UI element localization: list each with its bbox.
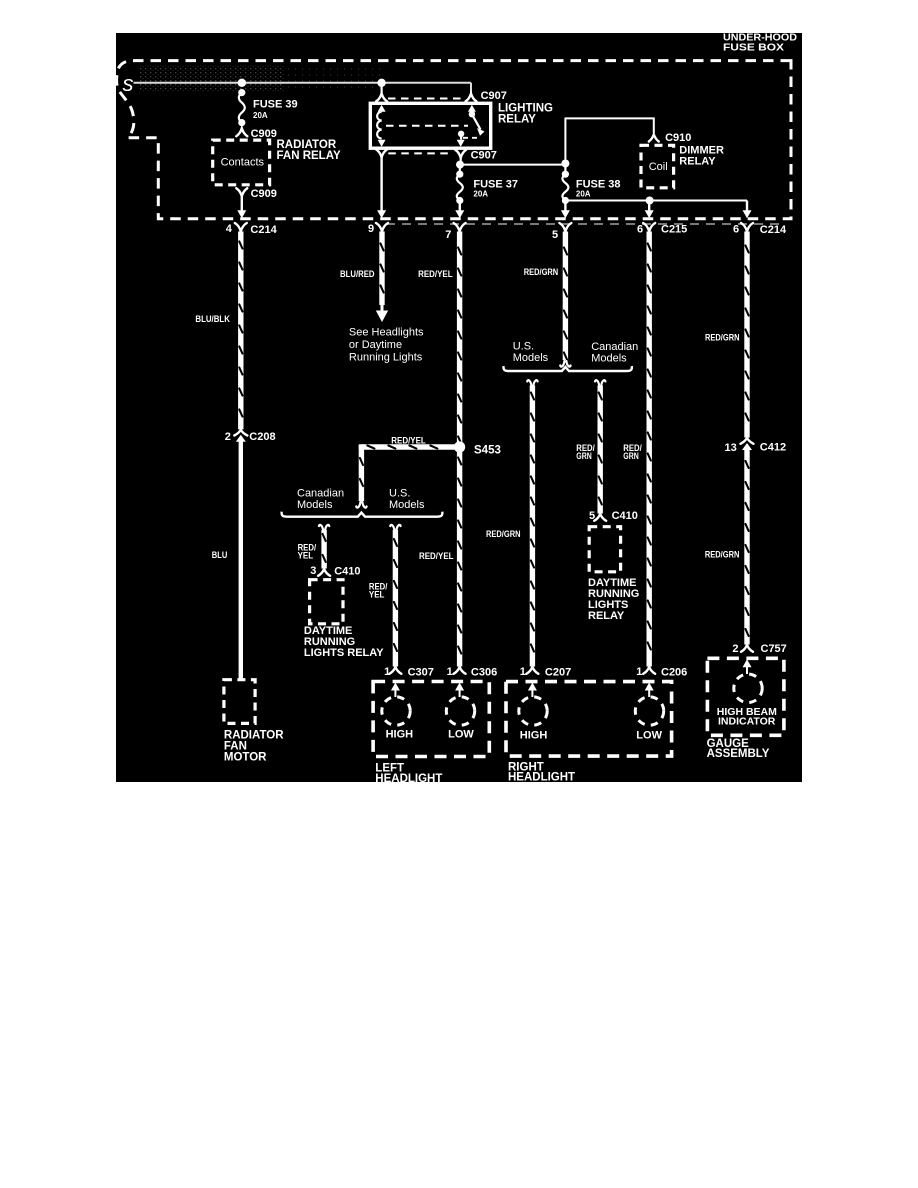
- svg-text:20A: 20A: [576, 190, 591, 199]
- svg-text:RED/GRN: RED/GRN: [705, 549, 740, 560]
- svg-text:U.S.: U.S.: [513, 341, 534, 353]
- svg-text:GRN: GRN: [623, 451, 639, 462]
- svg-text:7: 7: [445, 229, 451, 241]
- svg-text:or Daytime: or Daytime: [349, 339, 402, 351]
- svg-text:Models: Models: [513, 352, 549, 364]
- svg-text:5: 5: [552, 229, 558, 241]
- svg-text:C206: C206: [661, 667, 687, 679]
- svg-text:RED/GRN: RED/GRN: [705, 332, 740, 343]
- svg-text:6: 6: [733, 223, 739, 235]
- svg-text:RED/GRN: RED/GRN: [486, 529, 521, 540]
- svg-text:Coil: Coil: [649, 161, 668, 173]
- svg-text:Running Lights: Running Lights: [349, 352, 423, 364]
- svg-text:RELAY: RELAY: [588, 610, 625, 622]
- svg-text:LIGHTS RELAY: LIGHTS RELAY: [304, 647, 384, 659]
- svg-text:INDICATOR: INDICATOR: [718, 715, 776, 727]
- svg-text:HIGH: HIGH: [386, 729, 414, 741]
- svg-text:Contacts: Contacts: [221, 156, 265, 168]
- svg-text:RELAY: RELAY: [679, 156, 716, 168]
- svg-text:5: 5: [589, 510, 595, 522]
- svg-text:9: 9: [368, 223, 374, 235]
- svg-text:C909: C909: [251, 188, 277, 200]
- svg-text:FUSE 38: FUSE 38: [576, 178, 621, 190]
- svg-text:HIGH: HIGH: [520, 730, 548, 742]
- svg-text:C207: C207: [545, 667, 571, 679]
- svg-text:2: 2: [732, 643, 738, 655]
- svg-text:C307: C307: [408, 667, 434, 679]
- svg-text:GRN: GRN: [576, 451, 592, 462]
- svg-text:C757: C757: [761, 643, 787, 655]
- svg-text:Models: Models: [591, 353, 627, 365]
- svg-text:4: 4: [226, 223, 233, 235]
- svg-text:s: s: [123, 71, 134, 96]
- svg-text:3: 3: [310, 565, 316, 577]
- svg-text:C410: C410: [612, 510, 638, 522]
- svg-text:1: 1: [447, 666, 453, 678]
- svg-text:FAN RELAY: FAN RELAY: [277, 150, 341, 162]
- svg-text:FUSE 37: FUSE 37: [473, 178, 518, 190]
- svg-text:See Headlights: See Headlights: [349, 327, 424, 339]
- svg-text:C215: C215: [661, 224, 687, 236]
- svg-text:C907: C907: [481, 90, 507, 102]
- svg-text:C412: C412: [760, 442, 786, 454]
- svg-text:C306: C306: [471, 667, 497, 679]
- svg-text:BLU: BLU: [212, 550, 228, 561]
- svg-text:RED/GRN: RED/GRN: [524, 267, 559, 278]
- svg-text:MOTOR: MOTOR: [224, 752, 267, 764]
- svg-text:RED/YEL: RED/YEL: [391, 435, 426, 446]
- svg-text:C208: C208: [249, 431, 275, 443]
- svg-text:C410: C410: [334, 566, 360, 578]
- svg-text:BLU/RED: BLU/RED: [340, 269, 375, 280]
- svg-text:20A: 20A: [473, 190, 488, 199]
- svg-text:Canadian: Canadian: [591, 341, 638, 353]
- svg-text:U.S.: U.S.: [389, 488, 410, 500]
- svg-text:13: 13: [725, 442, 737, 454]
- svg-text:RED/YEL: RED/YEL: [418, 269, 453, 280]
- svg-text:Models: Models: [389, 499, 425, 511]
- svg-text:2: 2: [225, 431, 231, 443]
- svg-text:C909: C909: [251, 128, 277, 140]
- svg-text:6: 6: [637, 224, 643, 236]
- svg-text:1: 1: [636, 666, 642, 678]
- svg-text:FUSE 39: FUSE 39: [253, 99, 298, 111]
- svg-text:HEADLIGHT: HEADLIGHT: [508, 772, 575, 784]
- svg-text:1: 1: [384, 666, 390, 678]
- svg-text:LOW: LOW: [448, 729, 474, 741]
- svg-text:Models: Models: [297, 499, 333, 511]
- svg-text:20A: 20A: [253, 111, 268, 120]
- svg-text:RELAY: RELAY: [498, 114, 536, 126]
- svg-text:RED/YEL: RED/YEL: [419, 551, 454, 562]
- svg-text:YEL: YEL: [298, 550, 314, 561]
- svg-text:C214: C214: [250, 224, 277, 236]
- svg-text:ASSEMBLY: ASSEMBLY: [707, 748, 770, 760]
- svg-text:Canadian: Canadian: [297, 488, 344, 500]
- svg-text:YEL: YEL: [369, 590, 385, 601]
- svg-text:FUSE BOX: FUSE BOX: [723, 42, 784, 54]
- svg-text:C907: C907: [471, 149, 497, 161]
- svg-text:1: 1: [520, 666, 526, 678]
- svg-text:S453: S453: [474, 445, 501, 457]
- svg-text:LIGHTING: LIGHTING: [498, 102, 553, 114]
- svg-text:C910: C910: [665, 132, 691, 144]
- svg-text:LOW: LOW: [636, 730, 662, 742]
- svg-text:HEADLIGHT: HEADLIGHT: [375, 773, 442, 785]
- svg-text:BLU/BLK: BLU/BLK: [195, 314, 230, 325]
- svg-text:C214: C214: [760, 224, 787, 236]
